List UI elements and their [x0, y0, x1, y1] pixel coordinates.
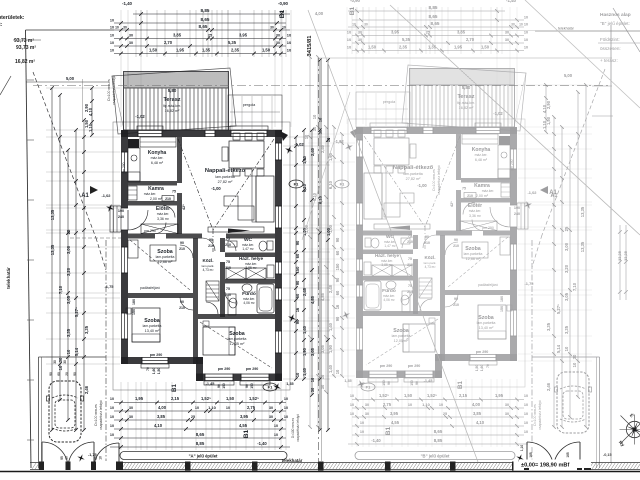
svg-text:30: 30	[129, 41, 133, 45]
svg-text:4,00: 4,00	[158, 405, 167, 410]
svg-text:1,95: 1,95	[135, 396, 144, 401]
svg-text:16,82 m²: 16,82 m²	[459, 106, 474, 110]
svg-text:180: 180	[500, 296, 504, 302]
svg-text:8,65: 8,65	[429, 14, 438, 19]
svg-text:13,35: 13,35	[580, 241, 585, 252]
svg-text:4,55: 4,55	[239, 423, 248, 428]
svg-text:25: 25	[564, 226, 569, 231]
svg-text:3,36 m²: 3,36 m²	[157, 217, 170, 221]
svg-text:7,10: 7,10	[572, 282, 577, 291]
svg-text:75: 75	[226, 237, 230, 241]
svg-text:3,35: 3,35	[66, 328, 71, 337]
svg-text:42⁵: 42⁵	[450, 201, 454, 207]
svg-text:5,27⁵: 5,27⁵	[74, 307, 79, 317]
svg-text:1,10: 1,10	[88, 123, 93, 132]
svg-text:210: 210	[165, 197, 171, 201]
svg-text:30: 30	[129, 415, 133, 419]
svg-text:10: 10	[524, 421, 528, 425]
svg-text:2,70: 2,70	[164, 40, 173, 45]
svg-text:telekhatár: telekhatár	[558, 27, 575, 31]
svg-text:3,85: 3,85	[473, 411, 482, 416]
svg-text:F1: F1	[268, 385, 273, 390]
svg-text:3,85: 3,85	[157, 414, 166, 419]
svg-text:B1: B1	[171, 383, 178, 391]
svg-text:90: 90	[454, 297, 458, 301]
svg-text:30: 30	[310, 387, 315, 392]
svg-text:10: 10	[110, 415, 114, 419]
svg-text:90: 90	[180, 300, 184, 304]
svg-text:60: 60	[335, 290, 340, 295]
svg-text:90: 90	[387, 381, 391, 385]
svg-text:8,85: 8,85	[429, 5, 438, 10]
svg-text:25: 25	[191, 415, 195, 419]
svg-text:+ terasz:: + terasz:	[600, 58, 618, 63]
svg-text:1,40: 1,40	[328, 322, 333, 331]
svg-text:4,85: 4,85	[320, 292, 325, 301]
svg-text:1,35: 1,35	[286, 382, 293, 386]
svg-text:10: 10	[274, 433, 278, 437]
svg-text:90: 90	[180, 241, 184, 245]
svg-text:210: 210	[467, 194, 473, 198]
svg-text:1,60: 1,60	[480, 365, 484, 372]
svg-text:30: 30	[53, 360, 57, 364]
svg-text:1,52⁵: 1,52⁵	[249, 396, 259, 401]
svg-text:2,46: 2,46	[546, 382, 551, 391]
svg-text:-1,45: -1,45	[206, 382, 216, 386]
svg-text:1,52⁵: 1,52⁵	[201, 396, 211, 401]
svg-text:42⁵: 42⁵	[182, 204, 186, 210]
svg-text:12,05 m²: 12,05 m²	[394, 339, 409, 343]
svg-text:B1: B1	[243, 429, 250, 438]
svg-text:210: 210	[208, 244, 214, 248]
svg-text:csapadékvíz lefolyó: csapadékvíz lefolyó	[437, 165, 441, 195]
svg-text:pm 290: pm 290	[122, 162, 126, 173]
svg-text:10: 10	[524, 31, 528, 35]
svg-text:2,48: 2,48	[302, 287, 307, 296]
svg-text:Terasz: Terasz	[457, 94, 474, 100]
svg-text:12,66 m²: 12,66 m²	[466, 257, 481, 261]
svg-text:150: 150	[250, 383, 254, 389]
svg-text:90: 90	[335, 237, 340, 242]
svg-text:165: 165	[566, 452, 570, 458]
svg-text:3,35: 3,35	[546, 322, 551, 331]
svg-text:30: 30	[364, 23, 368, 27]
svg-text:93,73 m²: 93,73 m²	[16, 45, 36, 51]
svg-text:1,90: 1,90	[328, 344, 333, 353]
svg-text:210: 210	[407, 240, 413, 244]
svg-text:4,73 m²: 4,73 m²	[203, 268, 214, 272]
svg-text:ltp.máz.ker.: ltp.máz.ker.	[457, 101, 475, 105]
svg-text:30: 30	[276, 41, 280, 45]
svg-text:75: 75	[408, 234, 412, 238]
svg-text:10: 10	[350, 412, 354, 416]
svg-text:1,00: 1,00	[326, 227, 331, 236]
svg-text:1,50: 1,50	[475, 365, 479, 372]
svg-text:2,00 m²: 2,00 m²	[476, 194, 489, 198]
svg-text:10: 10	[352, 23, 356, 27]
svg-text:ltp.máz.ker.: ltp.máz.ker.	[163, 104, 181, 108]
svg-text:10: 10	[284, 397, 288, 401]
svg-text:máz.ker.: máz.ker.	[151, 156, 164, 160]
svg-text:210: 210	[225, 243, 231, 247]
svg-text:6,48 m²: 6,48 m²	[475, 158, 488, 162]
svg-text:8,65: 8,65	[199, 24, 208, 29]
svg-text:10: 10	[360, 421, 364, 425]
svg-text:4,00: 4,00	[315, 11, 324, 16]
svg-text:2,75: 2,75	[383, 402, 392, 407]
svg-text:D=100 mm-es: D=100 mm-es	[94, 404, 98, 426]
svg-text:-1,00: -1,00	[417, 183, 427, 188]
svg-text:30: 30	[63, 360, 67, 364]
svg-text:10: 10	[304, 134, 309, 139]
svg-text:2,40: 2,40	[320, 144, 325, 153]
svg-text:25: 25	[443, 412, 447, 416]
svg-text:10: 10	[110, 26, 114, 30]
svg-text:16,82 m²: 16,82 m²	[15, 59, 35, 65]
svg-text:1,50: 1,50	[481, 45, 490, 50]
svg-text:máz.ker.: máz.ker.	[157, 212, 170, 216]
svg-text:1,95: 1,95	[495, 393, 504, 398]
svg-text:3,35: 3,35	[564, 325, 569, 334]
svg-text:máz.ker.: máz.ker.	[144, 192, 157, 196]
svg-text:8,65: 8,65	[196, 432, 205, 437]
svg-text:3,00: 3,00	[66, 245, 71, 254]
svg-text:1,60: 1,60	[302, 155, 307, 164]
svg-text:10: 10	[110, 397, 114, 401]
svg-text:1,52⁵: 1,52⁵	[379, 393, 389, 398]
svg-text:-0,15: -0,15	[603, 453, 612, 457]
svg-text:90: 90	[245, 384, 249, 388]
svg-text:2,35: 2,35	[399, 45, 408, 50]
svg-text:lam.parketta: lam.parketta	[477, 321, 496, 325]
svg-text:150: 150	[295, 266, 300, 274]
svg-text:3,35: 3,35	[84, 325, 89, 334]
svg-text:1,50: 1,50	[404, 393, 413, 398]
svg-text:210: 210	[453, 303, 459, 307]
svg-text:150: 150	[382, 380, 386, 386]
svg-text:10: 10	[282, 26, 286, 30]
svg-text:3,05: 3,05	[66, 295, 71, 304]
svg-text:-1,40: -1,40	[506, 0, 517, 3]
svg-text:10: 10	[350, 394, 354, 398]
svg-text:60: 60	[295, 253, 300, 258]
svg-text:máz.ker.: máz.ker.	[469, 209, 482, 213]
svg-text:-0,90: -0,90	[350, 0, 361, 3]
svg-text:lam.parketta: lam.parketta	[156, 255, 175, 259]
svg-text:240: 240	[118, 215, 124, 219]
svg-text:pm 290: pm 290	[144, 229, 156, 233]
svg-text:30: 30	[505, 31, 509, 35]
svg-text:Nappali-étkező: Nappali-étkező	[393, 165, 434, 171]
svg-text:pm 290: pm 290	[510, 159, 514, 170]
svg-text:-1,40: -1,40	[257, 441, 267, 446]
svg-text:5,14: 5,14	[74, 347, 79, 356]
svg-text:3,85 m²: 3,85 m²	[245, 266, 257, 270]
svg-text:210: 210	[453, 244, 459, 248]
svg-text:B1: B1	[385, 426, 392, 435]
svg-text:30: 30	[365, 403, 369, 407]
svg-text:1,50: 1,50	[226, 396, 235, 401]
svg-text:10: 10	[524, 38, 528, 42]
svg-text:3,36 m²: 3,36 m²	[469, 214, 482, 218]
svg-text:13,35: 13,35	[617, 250, 622, 261]
svg-text:30: 30	[312, 126, 317, 131]
svg-text:t:: t:	[0, 22, 3, 28]
svg-text:5,80: 5,80	[168, 88, 177, 93]
svg-text:F1: F1	[366, 385, 371, 390]
svg-text:10: 10	[572, 362, 577, 367]
svg-text:12,05 m²: 12,05 m²	[230, 342, 245, 346]
svg-text:150: 150	[500, 306, 504, 312]
svg-text:20: 20	[65, 372, 69, 376]
svg-text:10: 10	[335, 369, 340, 374]
svg-text:16: 16	[295, 307, 300, 312]
svg-text:30: 30	[511, 23, 515, 27]
svg-text:1,10: 1,10	[208, 405, 216, 410]
svg-text:10: 10	[284, 406, 288, 410]
svg-text:Hasznos alap: Hasznos alap	[600, 12, 631, 18]
svg-text:3,95: 3,95	[240, 414, 249, 419]
svg-text:pergola: pergola	[243, 103, 256, 107]
svg-text:D=100 mm-es: D=100 mm-es	[432, 169, 436, 191]
svg-text:2,00 m²: 2,00 m²	[150, 197, 163, 201]
svg-text:10: 10	[519, 23, 523, 27]
svg-text:8,65: 8,65	[201, 17, 210, 22]
svg-text:pm 290: pm 290	[482, 226, 494, 230]
svg-text:60: 60	[335, 250, 340, 255]
svg-text:10: 10	[408, 403, 412, 407]
svg-text:60: 60	[295, 293, 300, 298]
svg-text:100: 100	[118, 209, 124, 213]
svg-text:3,05: 3,05	[564, 292, 569, 301]
svg-text:-1,02: -1,02	[135, 114, 145, 119]
svg-text:-1,02: -1,02	[527, 190, 537, 195]
svg-text:4,10: 4,10	[542, 104, 547, 113]
svg-text:10: 10	[110, 19, 114, 23]
svg-text:95: 95	[94, 456, 98, 460]
svg-text:-1,00: -1,00	[211, 186, 221, 191]
svg-text:-1,02: -1,02	[493, 111, 503, 116]
svg-text:lam.parketta: lam.parketta	[464, 252, 483, 256]
svg-text:10: 10	[195, 406, 199, 410]
svg-text:3,85 m²: 3,85 m²	[381, 263, 393, 267]
svg-text:lam.parketta: lam.parketta	[228, 337, 247, 341]
svg-text:1,90: 1,90	[302, 347, 307, 356]
svg-text:210: 210	[424, 241, 430, 245]
svg-text:30: 30	[123, 26, 127, 30]
svg-text:máz.ker.: máz.ker.	[482, 189, 495, 193]
svg-text:1,95: 1,95	[176, 48, 185, 53]
svg-text:10: 10	[110, 424, 114, 428]
svg-text:16: 16	[335, 304, 340, 309]
svg-text:60: 60	[57, 372, 61, 376]
svg-text:27,82 m²: 27,82 m²	[406, 177, 421, 181]
svg-text:1,40: 1,40	[328, 364, 333, 373]
svg-text:13,35: 13,35	[50, 209, 55, 220]
svg-text:8,65: 8,65	[434, 429, 443, 434]
svg-text:-1,75: -1,75	[524, 281, 534, 286]
svg-text:27,82 m²: 27,82 m²	[218, 180, 233, 184]
svg-text:13,35: 13,35	[623, 250, 628, 261]
svg-text:10: 10	[66, 349, 71, 354]
svg-text:telekhatár: telekhatár	[6, 267, 11, 289]
svg-text:10: 10	[274, 424, 278, 428]
svg-text:13,35: 13,35	[580, 206, 585, 217]
svg-text:2,75: 2,75	[247, 405, 256, 410]
svg-text:210: 210	[179, 306, 185, 310]
svg-text:10: 10	[524, 430, 528, 434]
svg-text:240: 240	[514, 212, 520, 216]
svg-text:2,46: 2,46	[84, 385, 89, 394]
svg-text:2,35: 2,35	[231, 48, 240, 53]
svg-text:12,66 m²: 12,66 m²	[158, 260, 173, 264]
svg-text:-1,02: -1,02	[334, 139, 344, 144]
svg-text:210: 210	[407, 263, 413, 267]
svg-text:30: 30	[269, 415, 273, 419]
svg-text:lam.parketta: lam.parketta	[403, 172, 422, 176]
svg-text:10: 10	[99, 456, 103, 460]
svg-text:4,06 m²: 4,06 m²	[243, 301, 255, 305]
svg-text:F1: F1	[294, 182, 299, 187]
svg-text:4,10: 4,10	[88, 107, 93, 116]
svg-text:30: 30	[358, 38, 362, 42]
svg-text:1,10: 1,10	[520, 445, 524, 451]
svg-text:7,10: 7,10	[58, 285, 63, 294]
svg-text:10: 10	[110, 433, 114, 437]
svg-text:3,05: 3,05	[320, 344, 325, 353]
svg-text:3415/81: 3415/81	[307, 35, 313, 57]
svg-text:-1,45: -1,45	[424, 379, 434, 383]
svg-text:10: 10	[110, 41, 114, 45]
svg-text:4,10: 4,10	[476, 420, 485, 425]
svg-text:5,00: 5,00	[66, 76, 75, 81]
svg-text:-1,40: -1,40	[122, 1, 133, 6]
svg-text:Közl.: Közl.	[424, 255, 435, 260]
svg-text:pterületek:: pterületek:	[0, 15, 25, 21]
svg-text:"B" jelű épület: "B" jelű épület	[421, 454, 450, 459]
svg-text:10: 10	[360, 430, 364, 434]
svg-text:csapadékvíz lefolyó: csapadékvíz lefolyó	[538, 400, 542, 430]
svg-text:100: 100	[514, 206, 520, 210]
svg-text:90: 90	[217, 384, 221, 388]
svg-text:90: 90	[335, 277, 340, 282]
svg-text:1,35: 1,35	[202, 48, 211, 53]
svg-text:10: 10	[58, 365, 63, 370]
svg-text:30: 30	[358, 31, 362, 35]
svg-text:pm 290: pm 290	[380, 364, 393, 368]
svg-text:3,95: 3,95	[239, 33, 248, 38]
svg-text:90: 90	[415, 381, 419, 385]
svg-text:75: 75	[226, 287, 230, 291]
svg-text:B1: B1	[279, 9, 286, 18]
svg-text:5,00: 5,00	[564, 73, 573, 78]
svg-text:10: 10	[284, 415, 288, 419]
svg-text:A1: A1	[551, 193, 558, 199]
svg-text:B1: B1	[457, 380, 464, 388]
svg-text:90: 90	[209, 238, 213, 242]
svg-text:1,35: 1,35	[344, 379, 351, 383]
svg-text:25: 25	[208, 34, 212, 38]
svg-text:2,70: 2,70	[466, 37, 475, 42]
svg-text:pergola: pergola	[383, 100, 396, 104]
svg-text:10: 10	[326, 137, 331, 142]
svg-text:1,40: 1,40	[302, 325, 307, 334]
svg-text:150: 150	[335, 263, 340, 271]
svg-text:10: 10	[524, 16, 528, 20]
svg-text:5,27⁵: 5,27⁵	[556, 304, 561, 314]
svg-text:máz.ker.: máz.ker.	[475, 153, 488, 157]
svg-text:3,85: 3,85	[173, 33, 182, 38]
svg-text:10: 10	[65, 456, 69, 460]
svg-text:-1,02: -1,02	[101, 193, 111, 198]
svg-text:Nappali-étkező: Nappali-étkező	[205, 168, 246, 174]
svg-text:10: 10	[310, 377, 315, 382]
svg-text:6,48 m²: 6,48 m²	[151, 161, 164, 165]
svg-text:10: 10	[524, 412, 528, 416]
svg-text:210: 210	[179, 247, 185, 251]
svg-text:10: 10	[439, 403, 443, 407]
svg-text:90: 90	[425, 235, 429, 239]
svg-text:3,95: 3,95	[390, 411, 399, 416]
svg-text:A1: A1	[81, 193, 89, 199]
svg-text:210: 210	[407, 290, 413, 294]
svg-text:30: 30	[129, 34, 133, 38]
svg-text:150: 150	[410, 380, 414, 386]
svg-text:pm 290: pm 290	[150, 353, 163, 357]
svg-text:6,10: 6,10	[328, 180, 333, 189]
svg-text:165: 165	[529, 452, 533, 458]
svg-text:75: 75	[408, 257, 412, 261]
svg-text:75: 75	[226, 260, 230, 264]
svg-text:F1: F1	[340, 182, 345, 187]
svg-text:10: 10	[524, 23, 528, 27]
svg-text:13,40 m²: 13,40 m²	[145, 329, 160, 333]
svg-text:D=100 mm-es: D=100 mm-es	[107, 79, 111, 101]
svg-text:150: 150	[132, 309, 136, 315]
svg-text:összesen:: összesen:	[600, 46, 621, 51]
svg-text:4,00: 4,00	[472, 402, 481, 407]
svg-text:10: 10	[564, 346, 569, 351]
svg-text:95: 95	[60, 456, 64, 460]
svg-text:30: 30	[505, 412, 509, 416]
svg-text:1,60: 1,60	[152, 368, 156, 375]
svg-text:2,15: 2,15	[171, 396, 180, 401]
svg-text:30: 30	[270, 26, 274, 30]
svg-text:5,35: 5,35	[228, 40, 237, 45]
svg-text:lam.parketta: lam.parketta	[392, 334, 411, 338]
svg-text:150: 150	[222, 383, 226, 389]
svg-text:30: 30	[365, 412, 369, 416]
svg-text:10: 10	[110, 49, 114, 53]
svg-text:padlásfeljáró: padlásfeljáró	[140, 286, 160, 290]
svg-text:-1,02: -1,02	[294, 142, 304, 147]
svg-text:10: 10	[115, 26, 119, 30]
svg-text:5,14: 5,14	[556, 344, 561, 353]
svg-text:lam.parketta: lam.parketta	[215, 175, 234, 179]
svg-text:1,50: 1,50	[149, 48, 158, 53]
svg-text:telekhatár: telekhatár	[282, 458, 303, 463]
svg-text:4,85: 4,85	[310, 295, 315, 304]
svg-text:Közl.: Közl.	[202, 258, 213, 263]
svg-text:90: 90	[295, 319, 300, 324]
svg-text:Terasz: Terasz	[163, 97, 180, 103]
svg-text:16,82 m²: 16,82 m²	[165, 109, 180, 113]
svg-text:90: 90	[335, 316, 340, 321]
svg-text:csapadékvíz lefolyó: csapadékvíz lefolyó	[296, 414, 300, 442]
svg-text:8,65: 8,65	[431, 21, 440, 26]
svg-text:30: 30	[269, 406, 273, 410]
svg-text:75: 75	[172, 190, 176, 194]
